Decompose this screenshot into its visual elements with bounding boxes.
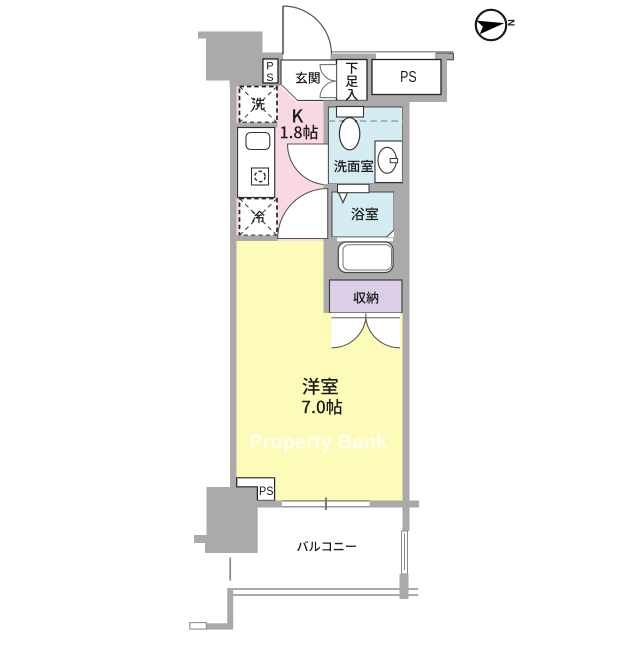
svg-text:P: P <box>266 61 273 73</box>
svg-text:S: S <box>266 72 273 84</box>
svg-text:PS: PS <box>400 69 417 86</box>
svg-text:PS: PS <box>259 486 274 498</box>
svg-text:N: N <box>505 19 516 26</box>
svg-text:Property Bank: Property Bank <box>249 431 388 453</box>
